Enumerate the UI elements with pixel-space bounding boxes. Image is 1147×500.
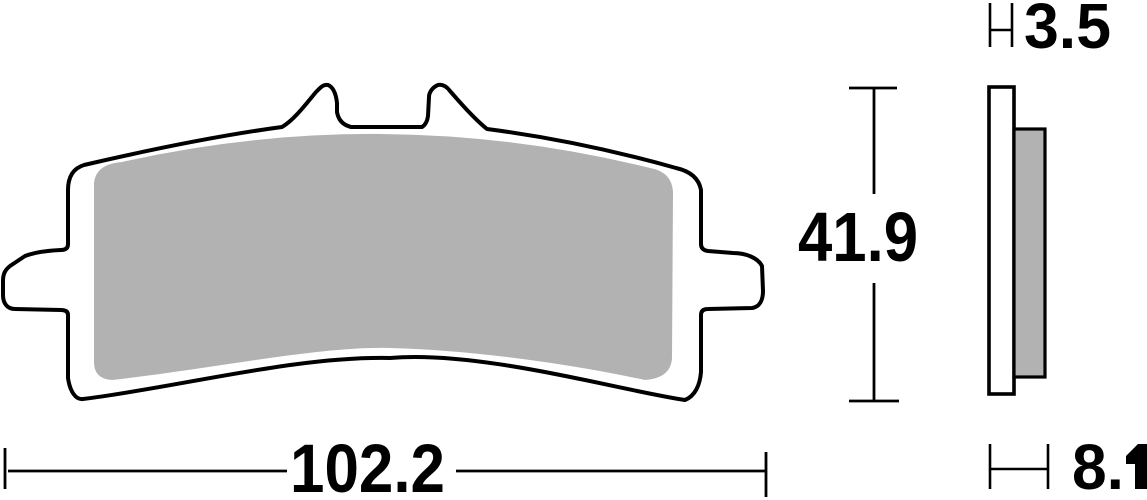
- svg-text:8.: 8.: [1072, 431, 1124, 500]
- svg-text:3.5: 3.5: [1024, 0, 1111, 62]
- svg-text:102.2: 102.2: [290, 430, 445, 500]
- svg-text:41.9: 41.9: [798, 198, 918, 276]
